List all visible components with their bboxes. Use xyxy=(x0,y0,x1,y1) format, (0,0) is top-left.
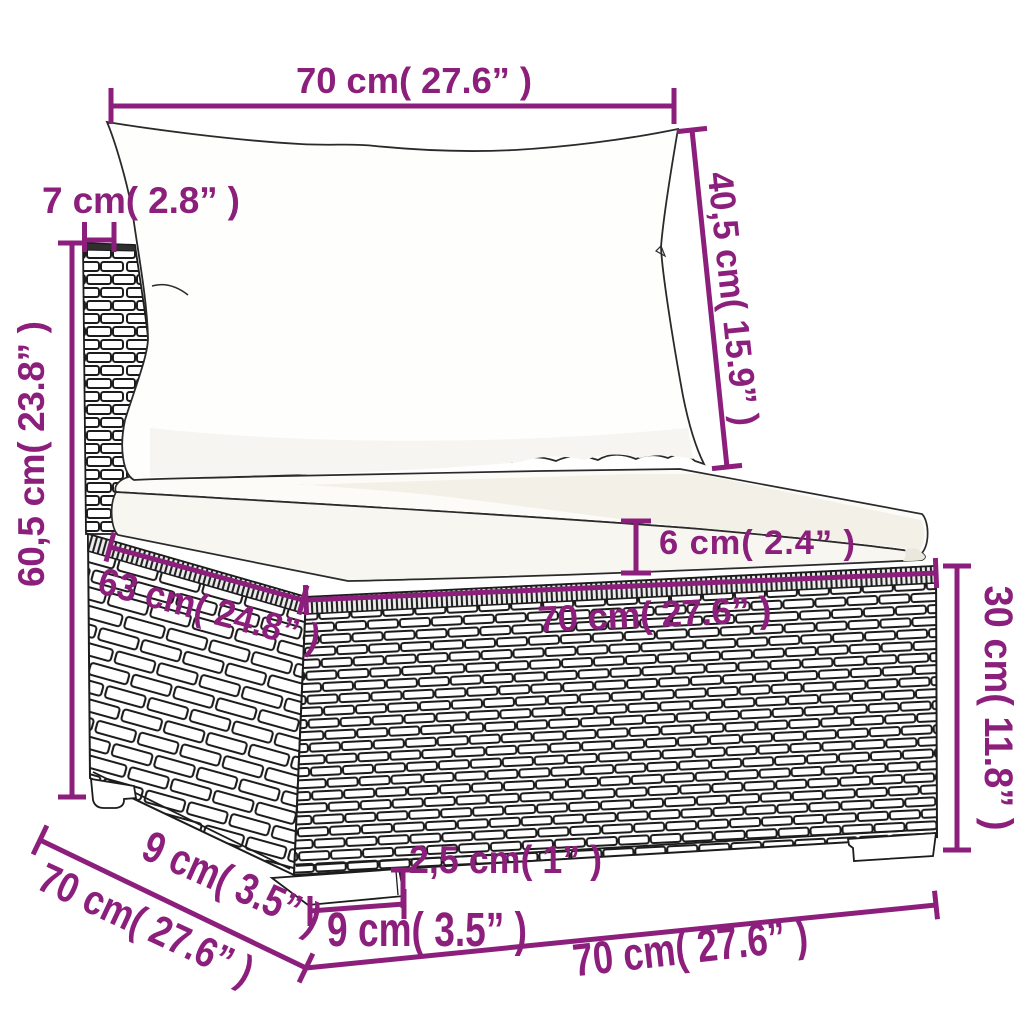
svg-text:6 cm( 2.4” ): 6 cm( 2.4” ) xyxy=(659,524,855,562)
svg-text:70 cm( 27.6” ): 70 cm( 27.6” ) xyxy=(296,60,532,101)
svg-text:60,5 cm( 23.8” ): 60,5 cm( 23.8” ) xyxy=(11,321,52,587)
svg-text:7 cm( 2.8” ): 7 cm( 2.8” ) xyxy=(42,180,240,221)
svg-text:30 cm( 11.8” ): 30 cm( 11.8” ) xyxy=(976,586,1020,831)
svg-text:2,5 cm( 1” ): 2,5 cm( 1” ) xyxy=(409,839,602,882)
